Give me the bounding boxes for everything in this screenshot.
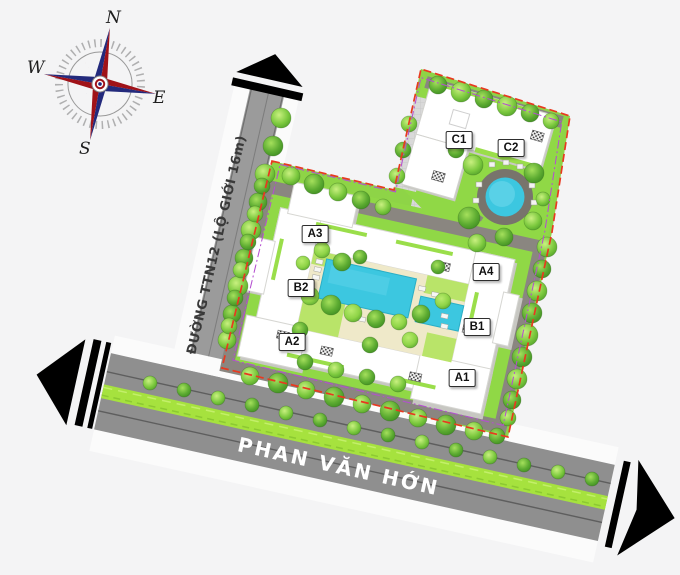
building-label-a2: A2 [279,333,306,351]
road-arrow-right-icon [604,457,680,566]
compass-south-label: S [79,139,91,159]
building-label-a1: A1 [449,369,476,387]
compass-west-label: W [27,58,44,78]
building-label-c1: C1 [446,131,473,149]
building-label-b2: B2 [288,279,315,297]
compass-rose-icon [25,9,175,159]
compass-east-label: E [153,88,165,108]
building-label-b1: B1 [464,318,491,336]
building-label-c2: C2 [498,139,525,157]
site-plan: N E S W ĐƯỜNG TTN12 (LỘ GIỚI 16m) PHAN V… [0,0,680,575]
building-label-a4: A4 [473,263,500,281]
building-label-a3: A3 [302,225,329,243]
compass-north-label: N [106,8,121,28]
